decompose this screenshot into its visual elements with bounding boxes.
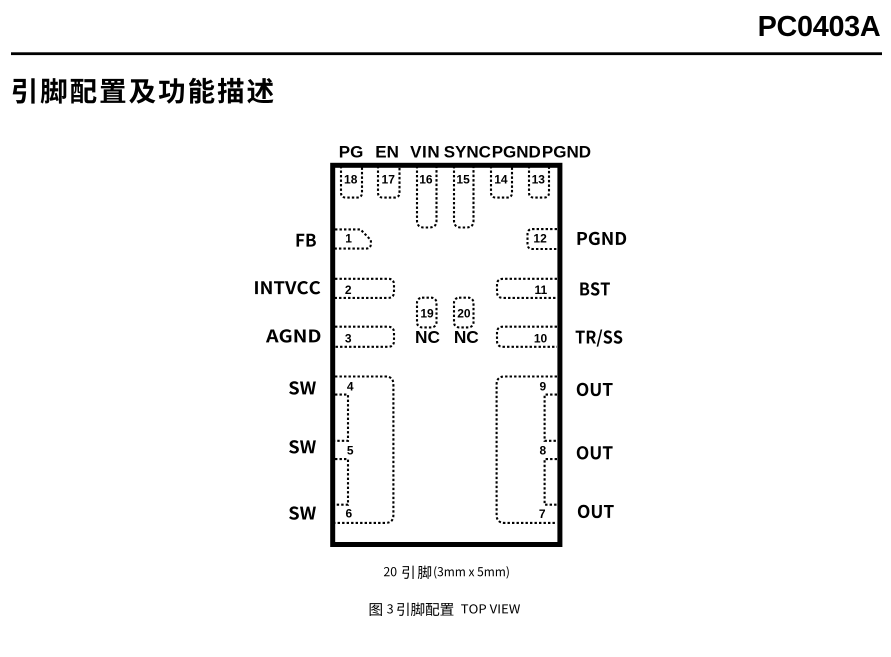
svg-text:PGND: PGND <box>492 143 541 162</box>
svg-text:10: 10 <box>534 331 548 345</box>
svg-text:13: 13 <box>532 172 546 186</box>
svg-text:3: 3 <box>345 331 352 345</box>
svg-text:17: 17 <box>382 172 396 186</box>
svg-text:NC: NC <box>415 327 440 347</box>
svg-text:14: 14 <box>494 172 508 186</box>
svg-text:EN: EN <box>375 143 399 162</box>
svg-text:6: 6 <box>346 507 353 521</box>
svg-text:20: 20 <box>457 306 471 320</box>
svg-text:5: 5 <box>347 444 354 458</box>
svg-text:SYNC: SYNC <box>444 143 491 162</box>
svg-text:19: 19 <box>420 306 434 320</box>
svg-text:16: 16 <box>419 172 433 186</box>
svg-text:9: 9 <box>539 380 546 394</box>
svg-text:11: 11 <box>534 283 547 297</box>
svg-text:1: 1 <box>345 232 352 246</box>
svg-text:15: 15 <box>456 172 470 186</box>
svg-text:7: 7 <box>539 507 546 521</box>
svg-text:VIN: VIN <box>410 143 440 162</box>
svg-text:2: 2 <box>345 283 352 297</box>
svg-text:PGND: PGND <box>542 143 591 162</box>
svg-text:4: 4 <box>347 380 354 394</box>
svg-text:8: 8 <box>539 444 546 458</box>
svg-text:12: 12 <box>533 232 547 246</box>
svg-text:PG: PG <box>339 143 364 162</box>
svg-text:NC: NC <box>454 327 479 347</box>
svg-text:PC0403A: PC0403A <box>758 11 881 43</box>
svg-text:18: 18 <box>344 172 358 186</box>
